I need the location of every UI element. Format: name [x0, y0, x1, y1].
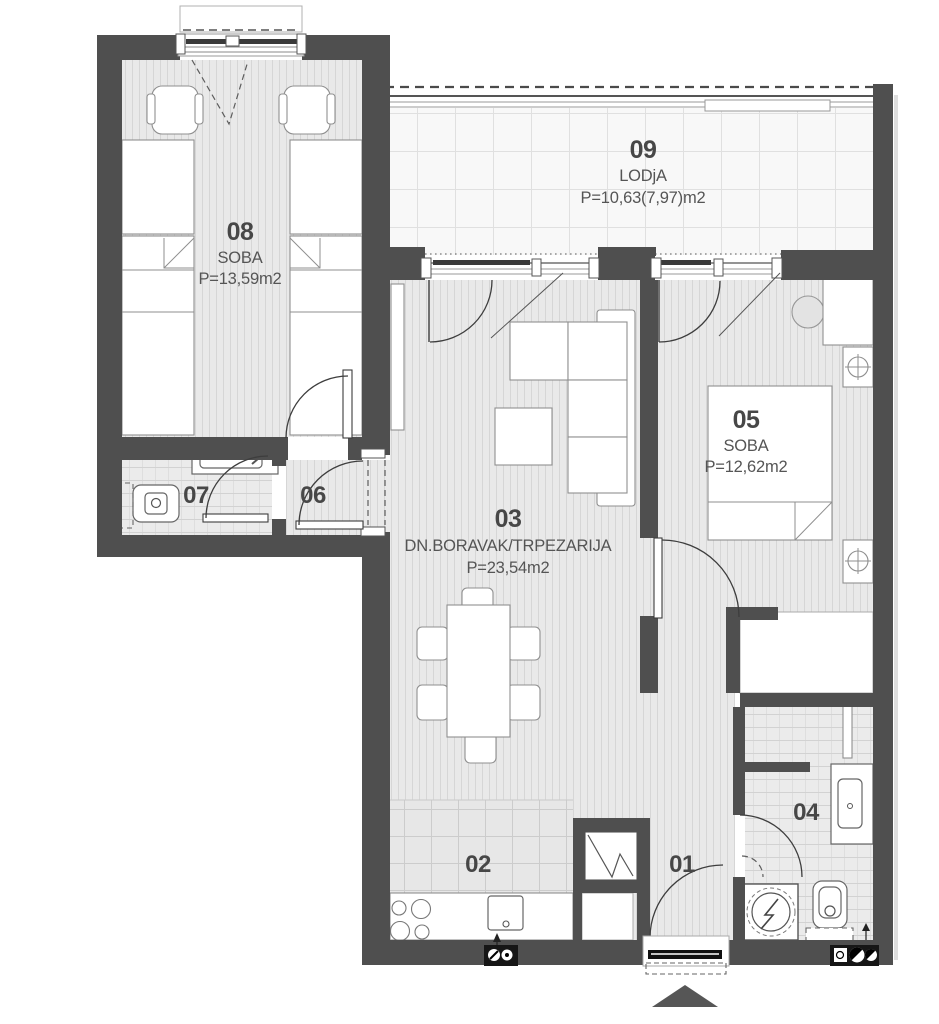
room-09-number: 09	[630, 136, 657, 164]
shaft-symbol	[585, 832, 637, 880]
nightstand-lamp-top	[843, 347, 873, 387]
radiator	[391, 284, 404, 430]
radiator-dashed	[806, 928, 853, 942]
dining-table	[447, 605, 510, 737]
room-01-number: 01	[669, 851, 695, 878]
floor-plan-page: 08 SOBA P=13,59m2 09 LODjA P=10,63(7,97)…	[0, 0, 939, 1024]
kitchen-sink	[488, 896, 523, 930]
bed-left	[122, 236, 194, 435]
desk	[823, 278, 873, 345]
room-02-floor	[390, 800, 573, 893]
balcony-door-room-03	[421, 256, 599, 280]
floor-plan-drawing: 08 SOBA P=13,59m2 09 LODjA P=10,63(7,97)…	[0, 0, 939, 1024]
chair-right	[279, 86, 335, 134]
dining-chair	[507, 627, 540, 660]
desk-right	[290, 140, 362, 234]
dining-chair	[507, 685, 540, 720]
room-05-area: P=12,62m2	[704, 458, 787, 476]
dining-chair	[417, 627, 448, 660]
room-03-name: DN.BORAVAK/TRPEZARIJA	[405, 537, 612, 555]
room-09-area: P=10,63(7,97)m2	[581, 189, 706, 207]
room-09-name: LODjA	[619, 167, 667, 185]
vanity-sink	[831, 764, 873, 844]
chair-left	[147, 86, 203, 134]
utility-symbols-kitchen	[484, 945, 518, 966]
lodja-planter	[705, 100, 830, 111]
washing-machine	[744, 884, 798, 940]
toilet	[133, 485, 179, 522]
room-04-number: 04	[793, 799, 820, 826]
coffee-table	[495, 408, 552, 465]
room-05-number: 05	[733, 406, 760, 434]
toilet	[813, 881, 847, 928]
room-05-name: SOBA	[723, 437, 768, 455]
room-06-number: 06	[300, 482, 326, 509]
room-08-area: P=13,59m2	[198, 270, 281, 288]
balcony-door-room-05	[651, 256, 782, 280]
dining-chair	[417, 685, 448, 720]
wardrobe-niche	[740, 612, 873, 693]
room-08-number: 08	[227, 218, 254, 246]
exterior-lining	[894, 95, 898, 960]
room-08-name: SOBA	[217, 249, 262, 267]
room-03-number: 03	[495, 505, 522, 533]
desk-left	[122, 140, 194, 234]
room-03-area: P=23,54m2	[466, 559, 549, 577]
fridge-niche	[582, 893, 633, 940]
room-02-number: 02	[465, 851, 491, 878]
room-07-number: 07	[183, 482, 209, 509]
utility-symbols-bathroom	[830, 944, 879, 966]
towel-radiator	[843, 705, 852, 758]
nightstand-lamp-bottom	[843, 540, 873, 583]
desk-chair	[792, 296, 824, 328]
entrance-marker	[652, 985, 718, 1007]
